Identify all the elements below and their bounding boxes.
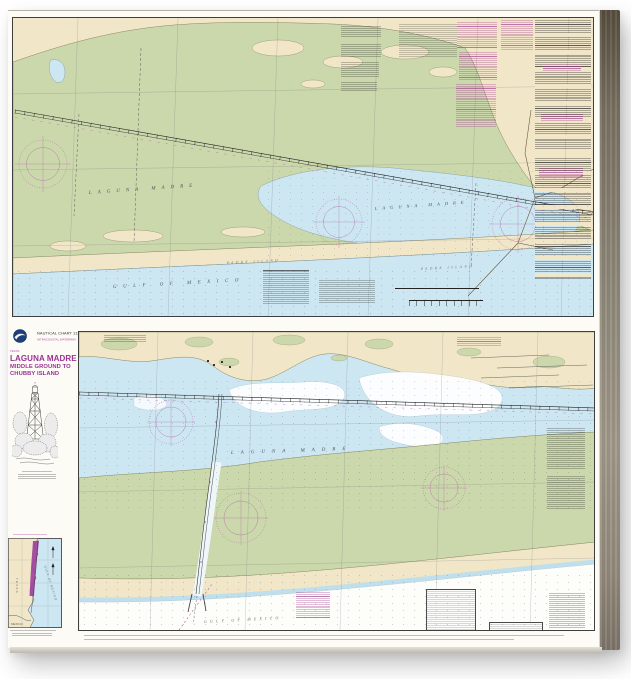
state-label: TEXAS xyxy=(10,350,19,353)
waterway-label: INTRACOASTAL WATERWAY xyxy=(37,338,76,341)
bottom-chart-panel: LAGUNA MADRE GULF OF MEXICO xyxy=(78,331,595,631)
lighthouse-illustration xyxy=(12,381,58,469)
magenta-note-block xyxy=(501,20,533,50)
magenta-note-block xyxy=(457,22,497,48)
tide-table xyxy=(319,280,375,304)
bottom-chart-map: LAGUNA MADRE GULF OF MEXICO xyxy=(79,332,595,631)
note-text-block xyxy=(341,82,377,92)
magenta-note-block xyxy=(459,52,497,80)
inset-caption-bottom xyxy=(10,630,56,632)
magenta-note-block xyxy=(456,84,496,128)
fine-print-line xyxy=(84,635,564,637)
acrylic-bottom-edge xyxy=(10,647,602,653)
note-text-block xyxy=(341,26,381,38)
print-face: LAGUNA MADRE LAGUNA MADRE PADRE ISLAND P… xyxy=(8,10,599,648)
note-box xyxy=(489,622,543,631)
note-text-block xyxy=(341,62,379,78)
acrylic-side-edge xyxy=(599,10,620,650)
scale-bar xyxy=(395,288,479,289)
magenta-note-block xyxy=(539,168,583,178)
note-text-block xyxy=(341,44,381,58)
acrylic-chart-print: LAGUNA MADRE LAGUNA MADRE PADRE ISLAND P… xyxy=(8,10,620,654)
chart-title-line1: LAGUNA MADRE xyxy=(10,354,77,363)
illustration-caption xyxy=(22,471,52,473)
illustration-caption xyxy=(18,474,56,479)
inset-label-texas: TEXAS xyxy=(15,578,19,594)
magenta-note-block xyxy=(457,337,501,346)
magenta-note-block xyxy=(543,64,581,72)
chart-title-line2: MIDDLE GROUND TO xyxy=(10,364,71,370)
chart-title-block xyxy=(535,20,591,150)
abbreviations-table xyxy=(399,24,457,58)
note-text-block xyxy=(547,428,585,470)
noaa-logo xyxy=(13,329,27,343)
fine-print-line xyxy=(84,639,514,641)
tide-table xyxy=(263,270,309,305)
inset-label-mexico: MEXICO xyxy=(11,622,24,626)
scale-ticks xyxy=(409,300,483,306)
locator-inset-map: TEXAS GULF OF MEXICO MEXICO xyxy=(8,538,62,628)
magenta-note-block xyxy=(541,114,583,122)
note-text-block xyxy=(104,335,146,343)
tidal-information-table xyxy=(426,589,476,631)
note-text-block xyxy=(547,476,585,510)
note-text-block xyxy=(549,593,585,629)
inset-caption-bottom xyxy=(12,633,52,636)
magenta-note-block xyxy=(296,592,330,618)
chart-title-line3: CHUBBY ISLAND xyxy=(10,371,59,377)
top-chart-panel: LAGUNA MADRE LAGUNA MADRE PADRE ISLAND P… xyxy=(12,17,594,317)
shoal-areas xyxy=(134,372,502,448)
inset-caption-top xyxy=(13,534,47,536)
